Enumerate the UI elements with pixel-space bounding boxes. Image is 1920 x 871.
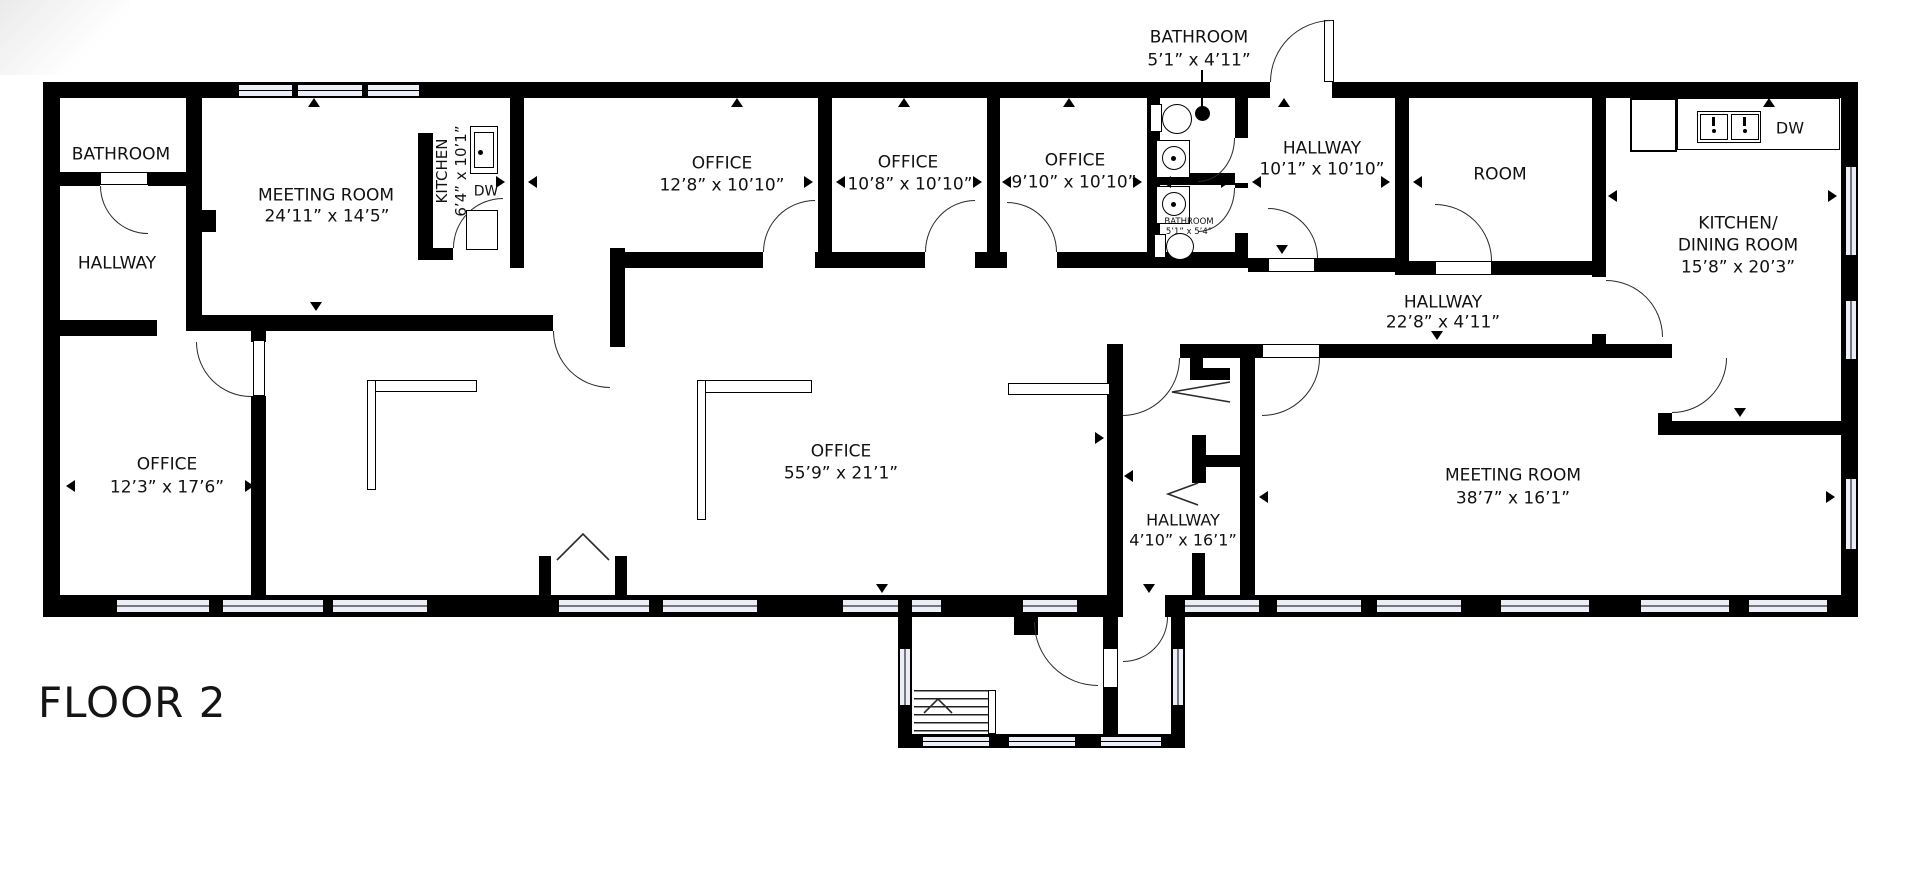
callout-dims-bathroom: 5’1” x 4’11” <box>1147 51 1250 72</box>
room-dims-office-2: 10’8” x 10’10” <box>847 175 972 196</box>
room-dims-meeting-room-1: 24’11” x 14’5” <box>264 207 389 228</box>
room-dims-office-3: 9’10” x 10’10” <box>1011 173 1136 194</box>
room-dims-office-1: 12’8” x 10’10” <box>659 176 784 197</box>
room-label-hallway-left: HALLWAY <box>78 254 156 275</box>
floor-title: FLOOR 2 <box>38 678 226 727</box>
room-dims-office-open: 55’9” x 21’1” <box>784 464 898 485</box>
room-label-office-2: OFFICE <box>878 153 939 174</box>
callout-label-bathroom: BATHROOM <box>1150 28 1248 49</box>
room-label-hallway-vert: HALLWAY <box>1146 510 1220 531</box>
door-swing-lines <box>0 0 1920 871</box>
room-label-bathroom-small: BATHROOM <box>1164 217 1213 227</box>
room-label-office-4: OFFICE <box>137 455 198 476</box>
room-label-kitchen-name: KITCHEN <box>433 125 452 216</box>
room-dims-bathroom-small: 5’1” x 5’4” <box>1166 227 1212 237</box>
room-label-office-open: OFFICE <box>811 442 872 463</box>
label-dw-kitchen-dining: DW <box>1776 118 1804 139</box>
room-label-kitchen: KITCHEN 6’4” x 10’1” <box>433 125 471 216</box>
floor-plan: BATHROOM HALLWAY MEETING ROOM 24’11” x 1… <box>0 0 1920 871</box>
room-dims-office-4: 12’3” x 17’6” <box>110 478 224 499</box>
room-dims-hallway-long: 22’8” x 4’11” <box>1386 313 1500 334</box>
room-label-office-3: OFFICE <box>1045 151 1106 172</box>
room-label-office-1: OFFICE <box>692 154 753 175</box>
room-label-room: ROOM <box>1473 165 1526 186</box>
label-dw-kitchen: DW <box>474 182 499 203</box>
room-label-kitchen-dining-1: KITCHEN/ <box>1698 214 1777 235</box>
room-dims-kitchen-dining: 15’8” x 20’3” <box>1681 258 1795 279</box>
room-dims-meeting-room-2: 38’7” x 16’1” <box>1456 489 1570 510</box>
room-label-hallway-long: HALLWAY <box>1404 293 1482 314</box>
room-dims-hallway-vert: 4’10” x 16’1” <box>1129 530 1236 551</box>
room-label-meeting-room-1: MEETING ROOM <box>258 186 394 207</box>
room-dims-kitchen: 6’4” x 10’1” <box>452 125 471 216</box>
room-label-kitchen-dining-2: DINING ROOM <box>1678 236 1798 257</box>
room-label-hallway-center: HALLWAY <box>1283 139 1361 160</box>
room-label-bathroom-tl: BATHROOM <box>72 145 170 166</box>
room-dims-hallway-center: 10’1” x 10’10” <box>1259 160 1384 181</box>
room-label-meeting-room-2: MEETING ROOM <box>1445 466 1581 487</box>
